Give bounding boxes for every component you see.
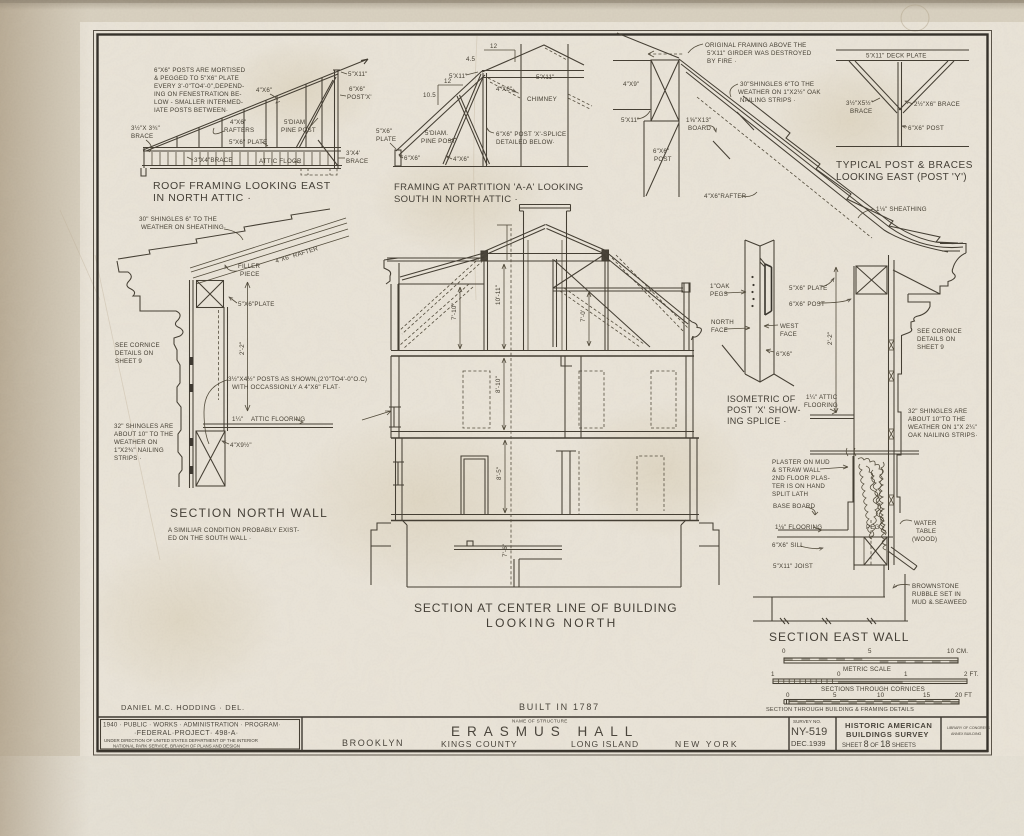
svg-text:FLOORING: FLOORING: [804, 402, 838, 409]
svg-text:SECTION THROUGH BUILDING & FRA: SECTION THROUGH BUILDING & FRAMING DETAI…: [766, 707, 914, 713]
svg-text:2ND FLOOR PLAS-: 2ND FLOOR PLAS-: [772, 475, 830, 482]
svg-text:OAK NAILING STRIPS·: OAK NAILING STRIPS·: [908, 432, 977, 439]
svg-text:15: 15: [923, 692, 931, 699]
svg-text:2½"X6" BRACE: 2½"X6" BRACE: [914, 101, 960, 108]
svg-text:IATE POSTS BETWEEN·: IATE POSTS BETWEEN·: [154, 107, 228, 114]
svg-text:NEW YORK: NEW YORK: [675, 739, 739, 749]
svg-text:5"X11" JOIST: 5"X11" JOIST: [773, 563, 813, 570]
svg-text:10.5: 10.5: [423, 92, 436, 99]
svg-text:5"X6" PLATE: 5"X6" PLATE: [229, 139, 267, 146]
svg-text:5'X11": 5'X11": [536, 74, 555, 81]
svg-text:CHIMNEY: CHIMNEY: [527, 96, 557, 103]
svg-text:DETAILS ON: DETAILS ON: [917, 336, 955, 343]
svg-text:1"X2¾" NAILING: 1"X2¾" NAILING: [114, 447, 164, 454]
svg-text:·FEDERAL·PROJECT· 498-A·: ·FEDERAL·PROJECT· 498-A·: [134, 730, 239, 737]
svg-text:FRAMING AT PARTITION 'A-A' LOO: FRAMING AT PARTITION 'A-A' LOOKING: [394, 182, 584, 193]
svg-text:PINE POST: PINE POST: [421, 138, 456, 145]
svg-text:6"X6" POSTS ARE MORTISED: 6"X6" POSTS ARE MORTISED: [154, 67, 246, 74]
svg-text:EVERY 3'-0"TO4'-0",DEPEND-: EVERY 3'-0"TO4'-0",DEPEND-: [154, 83, 244, 90]
svg-text:RAFTERS: RAFTERS: [224, 127, 254, 134]
svg-text:1"OAK: 1"OAK: [710, 283, 730, 290]
svg-text:BRACE: BRACE: [346, 158, 368, 165]
svg-text:ABOUT 10" TO THE: ABOUT 10" TO THE: [114, 431, 173, 438]
svg-text:HISTORIC AMERICAN: HISTORIC AMERICAN: [845, 721, 932, 730]
svg-text:FACE: FACE: [780, 331, 797, 338]
svg-text:5"X11": 5"X11": [348, 71, 368, 78]
svg-text:4"X6": 4"X6": [453, 156, 469, 163]
svg-text:DETAILS ON: DETAILS ON: [115, 350, 153, 357]
svg-text:12: 12: [490, 43, 498, 50]
svg-text:SHEET 9: SHEET 9: [115, 358, 142, 365]
svg-text:TYPICAL POST & BRACES: TYPICAL POST & BRACES: [836, 160, 973, 171]
svg-text:LIBRARY OF CONGRESS: LIBRARY OF CONGRESS: [947, 726, 990, 730]
svg-text:4"X6": 4"X6": [230, 119, 246, 126]
svg-text:5'X11": 5'X11": [621, 117, 640, 124]
svg-text:ING SPLICE ·: ING SPLICE ·: [727, 416, 787, 426]
svg-text:3'X4': 3'X4': [346, 150, 360, 157]
svg-text:20 FT: 20 FT: [955, 692, 972, 699]
svg-text:PEG: PEG: [866, 524, 880, 531]
svg-text:ORIGINAL FRAMING ABOVE THE: ORIGINAL FRAMING ABOVE THE: [705, 42, 806, 49]
svg-text:WEATHER ON: WEATHER ON: [114, 439, 157, 446]
svg-text:& PEGGED TO 5"X6" PLATE: & PEGGED TO 5"X6" PLATE: [154, 75, 239, 82]
svg-text:0: 0: [782, 648, 786, 655]
svg-text:10'-11": 10'-11": [495, 285, 502, 305]
svg-text:FILLER: FILLER: [238, 263, 261, 270]
svg-text:SPLIT LATH: SPLIT LATH: [772, 491, 808, 498]
svg-text:6"X6": 6"X6": [653, 148, 669, 155]
svg-text:LOOKING NORTH: LOOKING NORTH: [486, 616, 618, 630]
svg-text:2 FT.: 2 FT.: [964, 671, 979, 678]
svg-text:SHEET 9: SHEET 9: [917, 344, 944, 351]
svg-text:ERASMUS HALL: ERASMUS HALL: [451, 724, 639, 739]
svg-text:1⅝"X13": 1⅝"X13": [686, 117, 711, 124]
svg-text:ROOF FRAMING LOOKING EAST: ROOF FRAMING LOOKING EAST: [153, 180, 331, 192]
svg-text:2'-2": 2'-2": [239, 342, 246, 355]
svg-text:5'X11": 5'X11": [449, 73, 468, 80]
svg-text:6"X6": 6"X6": [349, 86, 365, 93]
svg-text:BRACE: BRACE: [131, 133, 153, 140]
svg-text:6"X6": 6"X6": [776, 351, 792, 358]
svg-text:5"X6"PLATE: 5"X6"PLATE: [238, 301, 275, 308]
svg-text:8'-5": 8'-5": [496, 467, 503, 480]
svg-text:ISOMETRIC OF: ISOMETRIC OF: [727, 394, 796, 404]
svg-text:5: 5: [833, 692, 837, 699]
svg-text:3½"X4½" POSTS AS SHOWN,(2'0"TO: 3½"X4½" POSTS AS SHOWN,(2'0"TO4'-0"O.C): [228, 376, 367, 383]
svg-text:0: 0: [786, 692, 790, 699]
svg-text:1¼" ATTIC: 1¼" ATTIC: [806, 394, 838, 401]
svg-text:2'-2": 2'-2": [827, 332, 834, 345]
svg-text:IN NORTH ATTIC ·: IN NORTH ATTIC ·: [153, 192, 251, 204]
svg-text:BROOKLYN: BROOKLYN: [342, 738, 404, 748]
svg-text:5'DIAM.: 5'DIAM.: [425, 130, 448, 137]
svg-text:6"X6" POST 'X'-SPLICE: 6"X6" POST 'X'-SPLICE: [496, 131, 566, 138]
svg-text:WEATHER ON SHEATHING·: WEATHER ON SHEATHING·: [141, 224, 226, 231]
svg-text:NATIONAL PARK SERVICE, BRANCH: NATIONAL PARK SERVICE, BRANCH OF PLANS A…: [113, 744, 240, 749]
svg-text:RUBBLE SET IN: RUBBLE SET IN: [912, 591, 961, 598]
svg-text:MUD &.SEAWEED: MUD &.SEAWEED: [912, 599, 967, 606]
svg-text:SECTION AT CENTER LINE OF BUIL: SECTION AT CENTER LINE OF BUILDING: [414, 601, 678, 615]
svg-text:BASE BOARD: BASE BOARD: [773, 503, 816, 510]
svg-text:NAILING STRIPS ·: NAILING STRIPS ·: [740, 97, 796, 104]
svg-text:SURVEY NO.: SURVEY NO.: [793, 719, 821, 724]
svg-text:6"X6" POST: 6"X6" POST: [789, 301, 825, 308]
svg-text:PLASTER ON MUD: PLASTER ON MUD: [772, 459, 830, 466]
svg-text:10 CM.: 10 CM.: [947, 648, 968, 655]
svg-text:4.5: 4.5: [466, 56, 476, 63]
svg-text:1: 1: [771, 671, 775, 678]
svg-text:3½"X 3¾": 3½"X 3¾": [131, 125, 160, 132]
svg-text:WATER: WATER: [914, 520, 937, 527]
svg-text:1¼": 1¼": [232, 416, 243, 423]
svg-text:A SIMILIAR CONDITION PROBABLY: A SIMILIAR CONDITION PROBABLY EXIST-: [168, 527, 299, 534]
svg-text:NORTH: NORTH: [711, 319, 734, 326]
svg-text:6"X6" SILL: 6"X6" SILL: [772, 542, 804, 549]
svg-text:FACE: FACE: [711, 327, 728, 334]
svg-text:10: 10: [877, 692, 885, 699]
svg-text:32" SHINGLES ARE: 32" SHINGLES ARE: [114, 423, 173, 430]
svg-text:TER IS ON HAND: TER IS ON HAND: [772, 483, 825, 490]
svg-text:DEC.1939: DEC.1939: [791, 739, 826, 748]
svg-text:& STRAW WALL: & STRAW WALL: [772, 467, 821, 474]
svg-text:(WOOD): (WOOD): [912, 536, 937, 543]
svg-text:PEGS: PEGS: [710, 291, 728, 298]
svg-text:DANIEL M.C. HODDING · DEL.: DANIEL M.C. HODDING · DEL.: [121, 703, 245, 712]
svg-text:LOOKING EAST (POST 'Y'): LOOKING EAST (POST 'Y'): [836, 172, 967, 183]
svg-text:PINE POST: PINE POST: [281, 127, 316, 134]
svg-text:1: 1: [904, 671, 908, 678]
svg-text:KINGS COUNTY: KINGS COUNTY: [441, 739, 518, 749]
svg-text:5'X11" DECK PLATE: 5'X11" DECK PLATE: [866, 53, 927, 60]
svg-text:30"SHINGLES 6"TO THE: 30"SHINGLES 6"TO THE: [740, 81, 814, 88]
svg-text:1⅛" SHEATHING: 1⅛" SHEATHING: [876, 206, 927, 213]
svg-text:1940 · PUBLIC · WORKS · ADMINI: 1940 · PUBLIC · WORKS · ADMINISTRATION ·…: [103, 722, 280, 729]
svg-text:6"X6" POST: 6"X6" POST: [908, 125, 944, 132]
svg-text:SOUTH IN NORTH ATTIC ·: SOUTH IN NORTH ATTIC ·: [394, 194, 518, 205]
svg-text:POST: POST: [654, 156, 672, 163]
svg-text:SECTION NORTH WALL: SECTION NORTH WALL: [170, 506, 328, 520]
svg-text:PLATE: PLATE: [376, 136, 396, 143]
svg-text:BRACE: BRACE: [850, 108, 872, 115]
svg-text:5: 5: [868, 648, 872, 655]
svg-text:5'X11" GIRDER WAS DESTROYED: 5'X11" GIRDER WAS DESTROYED: [707, 50, 812, 57]
svg-text:WEST: WEST: [780, 323, 799, 330]
svg-text:WEATHER ON 1"X2½" OAK: WEATHER ON 1"X2½" OAK: [738, 89, 821, 96]
svg-text:UNDER DIRECTION OF UNITED STAT: UNDER DIRECTION OF UNITED STATES DEPARTM…: [104, 738, 258, 743]
svg-text:4"X6"RAFTER: 4"X6"RAFTER: [704, 193, 747, 200]
svg-text:WITH OCCASSIONLY A 4"X6" FLAT·: WITH OCCASSIONLY A 4"X6" FLAT·: [232, 384, 340, 391]
svg-text:ING ON FENESTRATION BE-: ING ON FENESTRATION BE-: [154, 91, 242, 98]
svg-text:5"X6": 5"X6": [376, 128, 392, 135]
svg-text:6"X6": 6"X6": [404, 155, 420, 162]
svg-text:BUILT IN 1787: BUILT IN 1787: [519, 702, 600, 712]
svg-text:4"X6": 4"X6": [256, 87, 272, 94]
svg-text:NAME OF STRUCTURE: NAME OF STRUCTURE: [512, 719, 568, 724]
svg-text:ANNEX BUILDING: ANNEX BUILDING: [951, 732, 982, 736]
svg-text:SEE CORNICE: SEE CORNICE: [917, 328, 962, 335]
svg-text:3"X4"BRACE: 3"X4"BRACE: [194, 157, 233, 164]
svg-text:7'-0': 7'-0': [580, 310, 587, 322]
svg-text:7'-10": 7'-10": [451, 303, 458, 320]
svg-text:32" SHINGLES ARE: 32" SHINGLES ARE: [908, 408, 967, 415]
svg-text:NY-519: NY-519: [791, 726, 827, 738]
svg-text:5"X6" PLATE: 5"X6" PLATE: [789, 285, 827, 292]
svg-text:30" SHINGLES 6" TO THE: 30" SHINGLES 6" TO THE: [139, 216, 217, 223]
svg-text:ED ON THE SOUTH WALL ·: ED ON THE SOUTH WALL ·: [168, 535, 251, 542]
svg-text:STRIPS ·: STRIPS ·: [114, 455, 142, 462]
svg-text:TABLE: TABLE: [916, 528, 936, 535]
svg-text:7'-6": 7'-6": [502, 544, 509, 557]
svg-text:4"X9½": 4"X9½": [230, 442, 252, 449]
svg-text:METRIC SCALE: METRIC SCALE: [843, 666, 891, 673]
svg-text:POST 'X' SHOW-: POST 'X' SHOW-: [727, 405, 801, 415]
svg-text:ABOUT 10"TO THE: ABOUT 10"TO THE: [908, 416, 965, 423]
svg-text:3½"X5½": 3½"X5½": [846, 100, 873, 107]
svg-text:SECTION EAST WALL: SECTION EAST WALL: [769, 630, 909, 644]
svg-text:BY FIRE ·: BY FIRE ·: [707, 58, 737, 65]
svg-text:LOW - SMALLER INTERMED-: LOW - SMALLER INTERMED-: [154, 99, 243, 106]
svg-text:4"X9": 4"X9": [623, 81, 639, 88]
svg-text:LONG ISLAND: LONG ISLAND: [571, 739, 639, 749]
svg-text:DETAILED BELOW·: DETAILED BELOW·: [496, 139, 555, 146]
svg-text:POST'X': POST'X': [347, 94, 372, 101]
svg-text:4"X6": 4"X6": [496, 86, 512, 93]
svg-text:BUILDINGS SURVEY: BUILDINGS SURVEY: [846, 730, 929, 739]
svg-text:WEATHER ON 1"X 2¼": WEATHER ON 1"X 2¼": [908, 424, 977, 431]
svg-text:PIECE: PIECE: [240, 271, 260, 278]
svg-text:SEE CORNICE: SEE CORNICE: [115, 342, 160, 349]
svg-text:0: 0: [837, 671, 841, 678]
svg-text:5'DIAM: 5'DIAM: [284, 119, 305, 126]
svg-text:BROWNSTONE: BROWNSTONE: [912, 583, 959, 590]
svg-text:8'-10": 8'-10": [495, 376, 502, 393]
